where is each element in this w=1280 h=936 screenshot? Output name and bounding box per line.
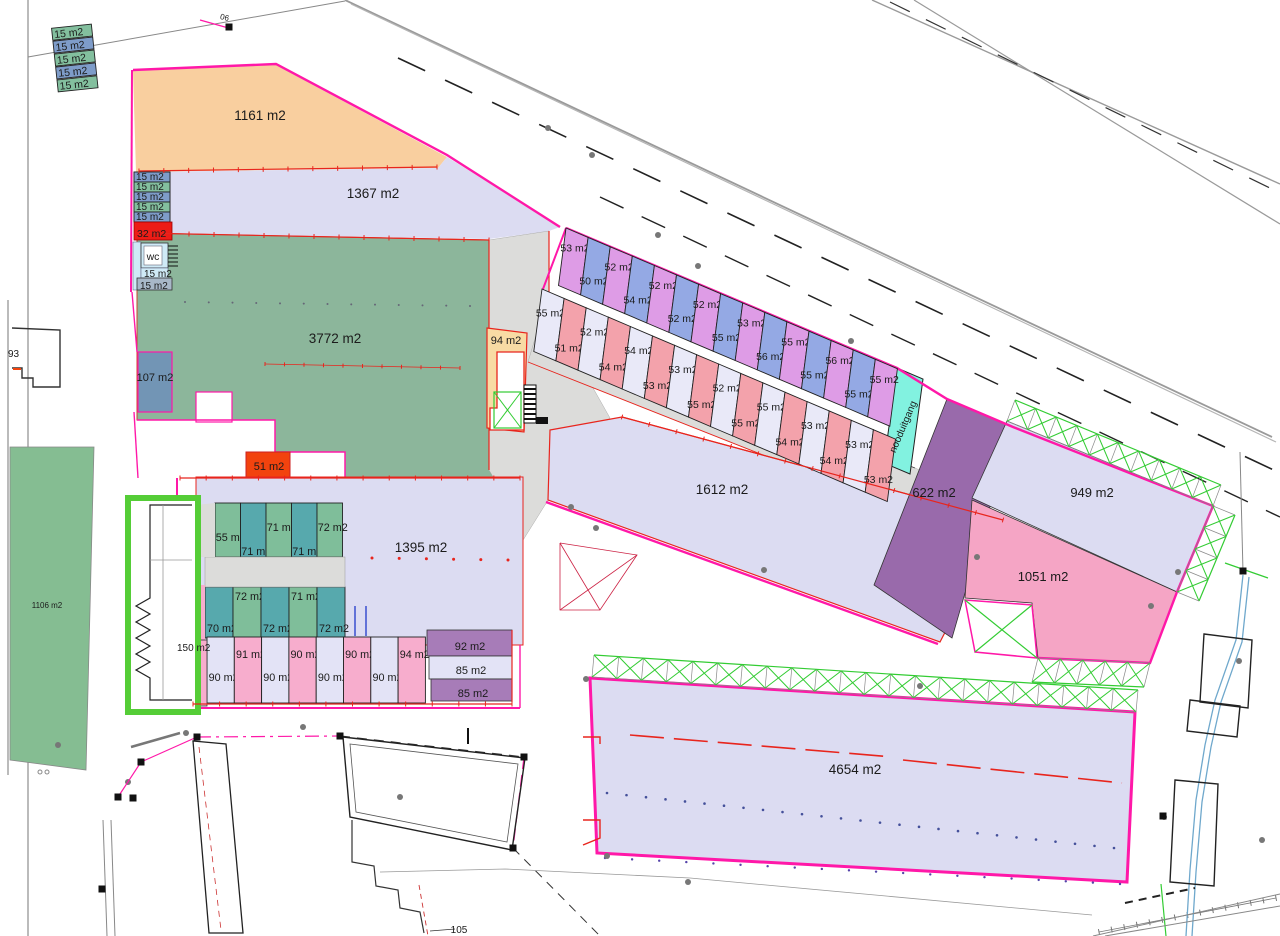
unit-label: 71 m2 <box>291 591 321 603</box>
label-107: 107 m2 <box>137 372 174 384</box>
unit-label: 52 m2 <box>713 383 742 395</box>
survey-dot <box>183 730 189 736</box>
grid-unit <box>398 637 425 703</box>
teal-grid-upper: 55 m271 m271 m271 m272 m2 <box>215 503 348 558</box>
grid-unit <box>234 637 261 703</box>
label-wc: wc <box>146 251 160 263</box>
survey-dot <box>397 794 403 800</box>
survey-dot <box>568 504 574 510</box>
grid-unit <box>316 637 343 703</box>
label-4654: 4654 m2 <box>829 762 882 777</box>
unit-label: 55 m2 <box>536 308 565 320</box>
survey-marker <box>130 795 137 802</box>
building-stepped <box>352 820 424 933</box>
survey-dot <box>545 125 551 131</box>
site-plan-canvas: 15 m215 m215 m215 m215 m2 15 m215 m215 m… <box>0 0 1280 936</box>
survey-marker <box>521 754 528 761</box>
label-1051: 1051 m2 <box>1018 569 1069 584</box>
unit-label: 55 m2 <box>757 401 786 413</box>
unit-label: 55 m2 <box>781 336 810 348</box>
unit-label: 53 m2 <box>668 364 697 376</box>
unit-label: 54 m2 <box>599 361 628 373</box>
grid-gray-band <box>205 557 345 587</box>
unit-label: 70 m2 <box>207 623 237 635</box>
grid-unit <box>215 503 241 557</box>
truss-triangle <box>560 543 637 610</box>
unit-label: 52 m2 <box>649 280 678 292</box>
unit-label: 53 m2 <box>737 318 766 330</box>
topleft-15m2-stack: 15 m215 m215 m215 m215 m2 <box>52 24 99 93</box>
survey-marker <box>337 733 344 740</box>
label-105: 105 <box>451 925 468 936</box>
left-15m2-cells: 15 m215 m215 m215 m215 m2 <box>134 172 170 223</box>
survey-dot <box>655 232 661 238</box>
survey-dot <box>593 525 599 531</box>
survey-dot <box>1236 658 1242 664</box>
label-85a: 85 m2 <box>456 665 487 677</box>
survey-marker <box>1240 568 1247 575</box>
grid-unit <box>207 637 234 703</box>
parcel-93-building <box>12 328 60 387</box>
survey-dot <box>583 676 589 682</box>
survey-dot <box>685 879 691 885</box>
unit-label: 50 m2 <box>579 276 608 288</box>
label-wc15a: 15 m2 <box>144 269 172 280</box>
unit-label: 72 m2 <box>318 522 348 534</box>
survey-marker <box>1160 813 1167 820</box>
label-92: 92 m2 <box>455 641 486 653</box>
label-51: 51 m2 <box>254 461 285 473</box>
grid-unit <box>289 637 316 703</box>
unit-label: 94 m2 <box>400 649 430 661</box>
unit-label: 52 m2 <box>580 326 609 338</box>
survey-dot <box>917 683 923 689</box>
survey-dot <box>1148 603 1154 609</box>
area-1161 <box>133 65 447 172</box>
unit-label: 55 m2 <box>712 332 741 344</box>
label-3772: 3772 m2 <box>309 331 362 346</box>
teal-grid-lower: 70 m272 m272 m271 m272 m2 <box>205 587 349 638</box>
label-1367: 1367 m2 <box>347 186 400 201</box>
label-1612: 1612 m2 <box>696 482 749 497</box>
unit-label: 53 m2 <box>643 380 672 392</box>
pink-unit-row: 90 m291 m290 m290 m290 m290 m290 m294 m2 <box>207 637 430 703</box>
survey-dot <box>55 742 61 748</box>
survey-dot <box>695 263 701 269</box>
unit-label: 54 m2 <box>624 294 653 306</box>
unit-label: 52 m2 <box>693 299 722 311</box>
survey-marker <box>510 845 517 852</box>
unit-label: 53 m2 <box>801 420 830 432</box>
label-622: 622 m2 <box>912 485 955 500</box>
survey-dot <box>848 338 854 344</box>
survey-dot <box>1175 569 1181 575</box>
survey-marker <box>194 734 201 741</box>
unit-label: 52 m2 <box>605 261 634 273</box>
unit-label: 53 m2 <box>845 439 874 451</box>
label-949: 949 m2 <box>1070 485 1113 500</box>
label-94: 94 m2 <box>491 335 522 347</box>
grid-unit <box>344 637 371 703</box>
building-right-3 <box>1170 780 1218 886</box>
unit-label: 52 m2 <box>668 313 697 325</box>
label-93: 93 <box>8 349 20 360</box>
unit-label: 56 m2 <box>825 355 854 367</box>
unit-label: 55 m2 <box>687 399 716 411</box>
unit-label: 54 m2 <box>624 345 653 357</box>
survey-marker <box>138 759 145 766</box>
label-1161: 1161 m2 <box>234 108 286 123</box>
unit-label: 72 m2 <box>263 623 293 635</box>
building-right-1 <box>1200 634 1252 708</box>
label-85b: 85 m2 <box>458 688 489 700</box>
grid-unit <box>262 637 289 703</box>
survey-dot <box>974 554 980 560</box>
label-1395: 1395 m2 <box>395 540 448 555</box>
unit-label: 51 m2 <box>555 343 584 355</box>
unit-label: 15 m2 <box>59 78 89 93</box>
survey-marker <box>99 886 106 893</box>
label-32: 32 m2 <box>137 228 166 240</box>
unit-label: 54 m2 <box>775 436 804 448</box>
survey-marker <box>115 794 122 801</box>
gray-mark <box>131 733 180 747</box>
area-4654 <box>590 678 1135 882</box>
unit-label: 55 m2 <box>800 370 829 382</box>
unit-label: 56 m2 <box>756 351 785 363</box>
unit-label: 72 m2 <box>319 623 349 635</box>
label-150: 150 m2 <box>177 643 211 654</box>
survey-dot <box>1259 837 1265 843</box>
unit-label: 53 m2 <box>560 243 589 255</box>
area-3772 <box>137 233 497 478</box>
survey-dot <box>589 152 595 158</box>
unit-label: 55 m2 <box>731 418 760 430</box>
survey-dot <box>604 853 610 859</box>
unit-label: 15 m2 <box>136 212 164 223</box>
unit-label: 54 m2 <box>820 455 849 467</box>
label-1106: 1106 m2 <box>32 601 63 610</box>
survey-marker <box>226 24 233 31</box>
white-step-cutout <box>196 392 232 422</box>
grid-unit <box>371 637 398 703</box>
site-plan: 15 m215 m215 m215 m215 m2 15 m215 m215 m… <box>0 0 1280 936</box>
unit-label: 55 m2 <box>844 388 873 400</box>
survey-dot <box>300 724 306 730</box>
survey-dot <box>761 567 767 573</box>
unit-label: 72 m2 <box>235 591 265 603</box>
label-wc15b: 15 m2 <box>140 281 168 292</box>
unit-label: 55 m2 <box>870 374 899 386</box>
